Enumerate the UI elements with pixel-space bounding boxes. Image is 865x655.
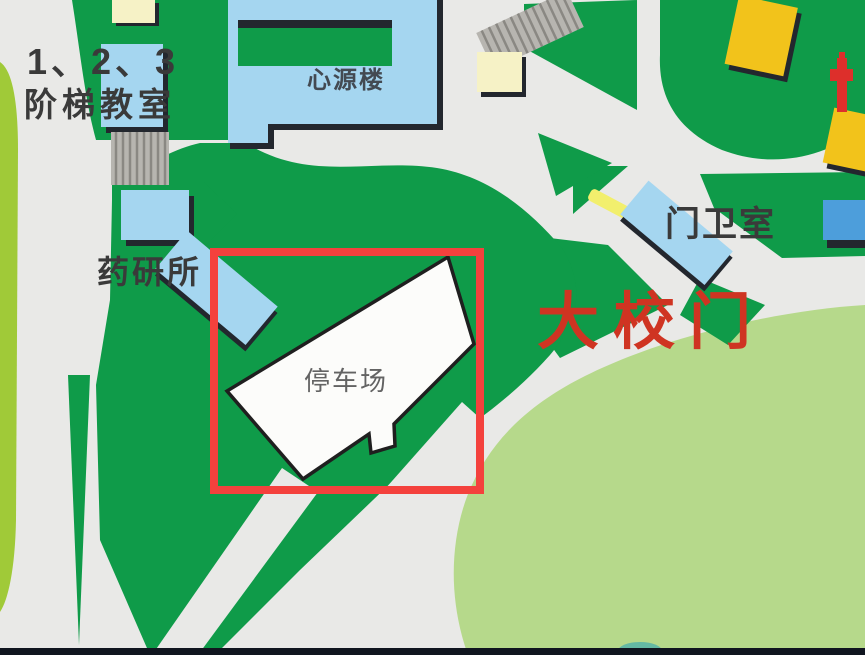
cream-building-middle <box>477 52 526 97</box>
label-staircase-line1: 1、2、3 <box>27 41 179 82</box>
blue-building-right-edge <box>823 200 865 248</box>
campus-map-canvas: 1、2、3 阶梯教室 心源楼 药研所 停车场 门卫室 大校门 <box>0 0 865 655</box>
label-guard-room: 门卫室 <box>665 204 776 244</box>
xinyuan-courtyard <box>238 28 392 66</box>
bottom-dark-bar <box>0 648 865 655</box>
label-main-gate: 大校门 <box>537 288 765 357</box>
label-staircase-line2: 阶梯教室 <box>24 86 176 123</box>
campus-map-screenshot: 1、2、3 阶梯教室 心源楼 药研所 停车场 门卫室 大校门 <box>0 0 865 655</box>
label-pharmacy-institute: 药研所 <box>97 254 202 290</box>
stairs-vertical <box>111 132 169 185</box>
label-parking-lot: 停车场 <box>304 366 388 396</box>
label-xinyuan-building: 心源楼 <box>307 67 385 94</box>
cream-building-top <box>112 0 159 26</box>
olive-green-strip <box>0 62 18 612</box>
